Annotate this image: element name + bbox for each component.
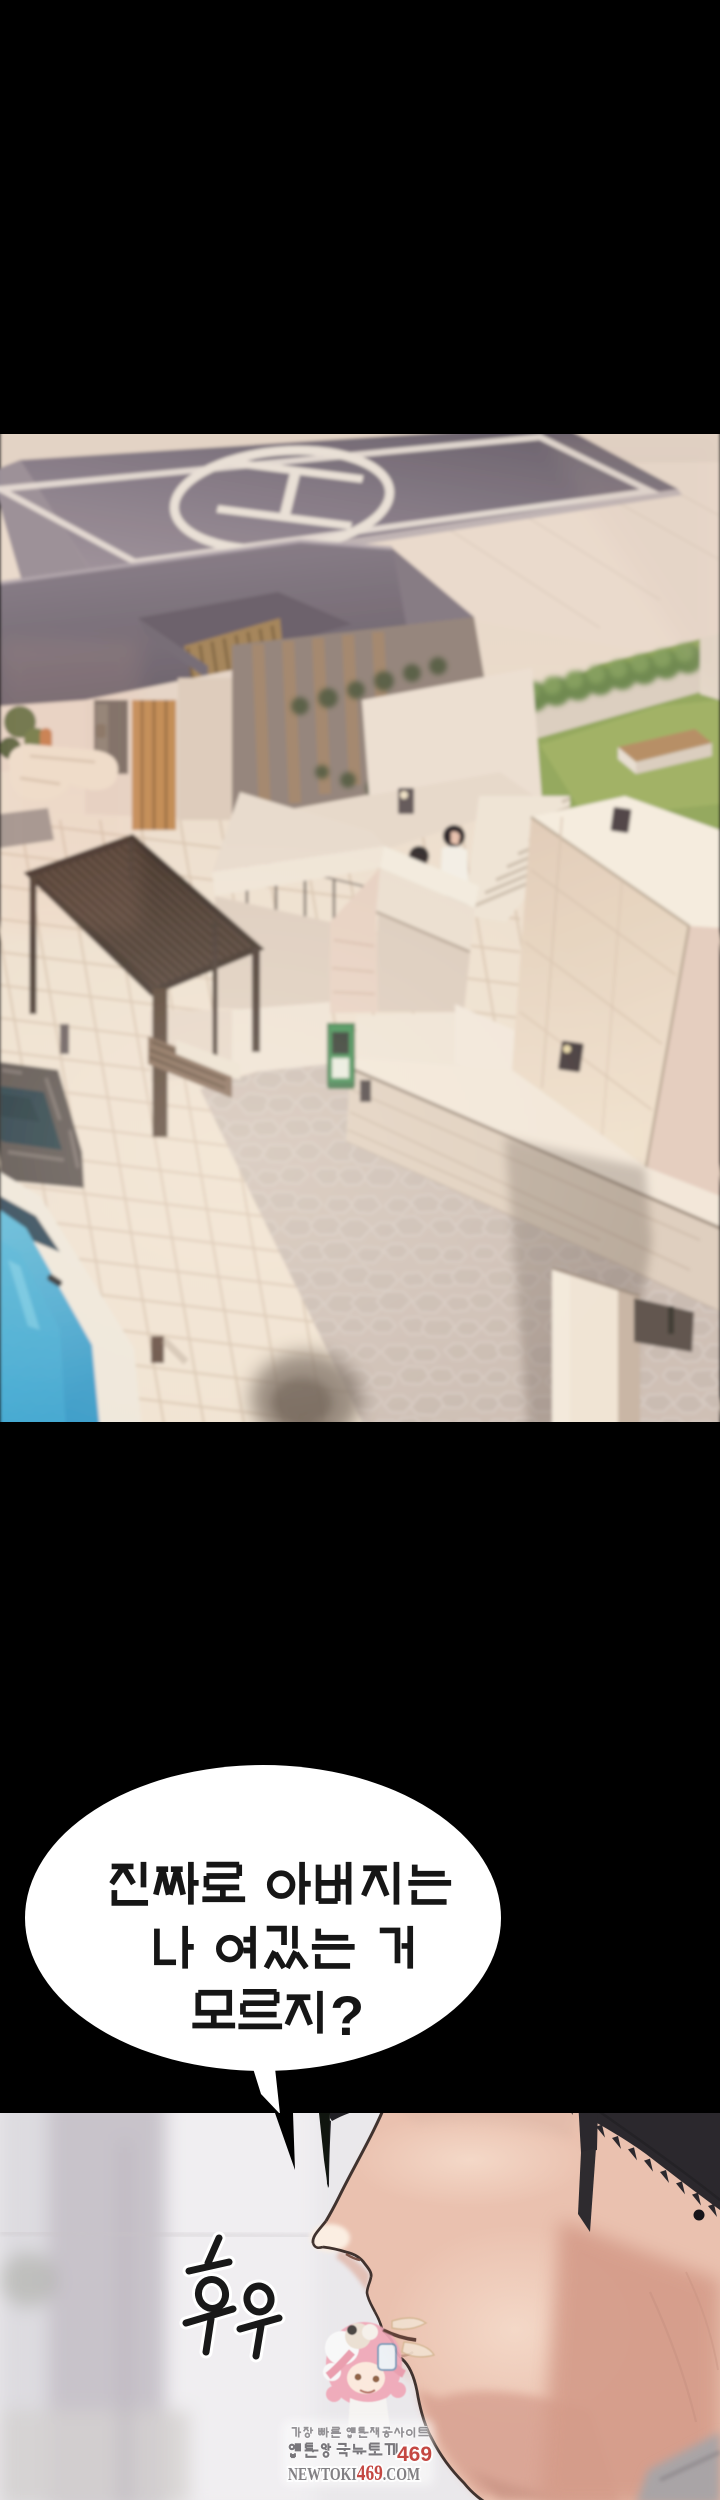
svg-text:?: ? (330, 1984, 364, 2047)
svg-text:NEWTOKI469.COM: NEWTOKI469.COM (288, 2460, 420, 2485)
svg-text:469: 469 (397, 2443, 432, 2466)
